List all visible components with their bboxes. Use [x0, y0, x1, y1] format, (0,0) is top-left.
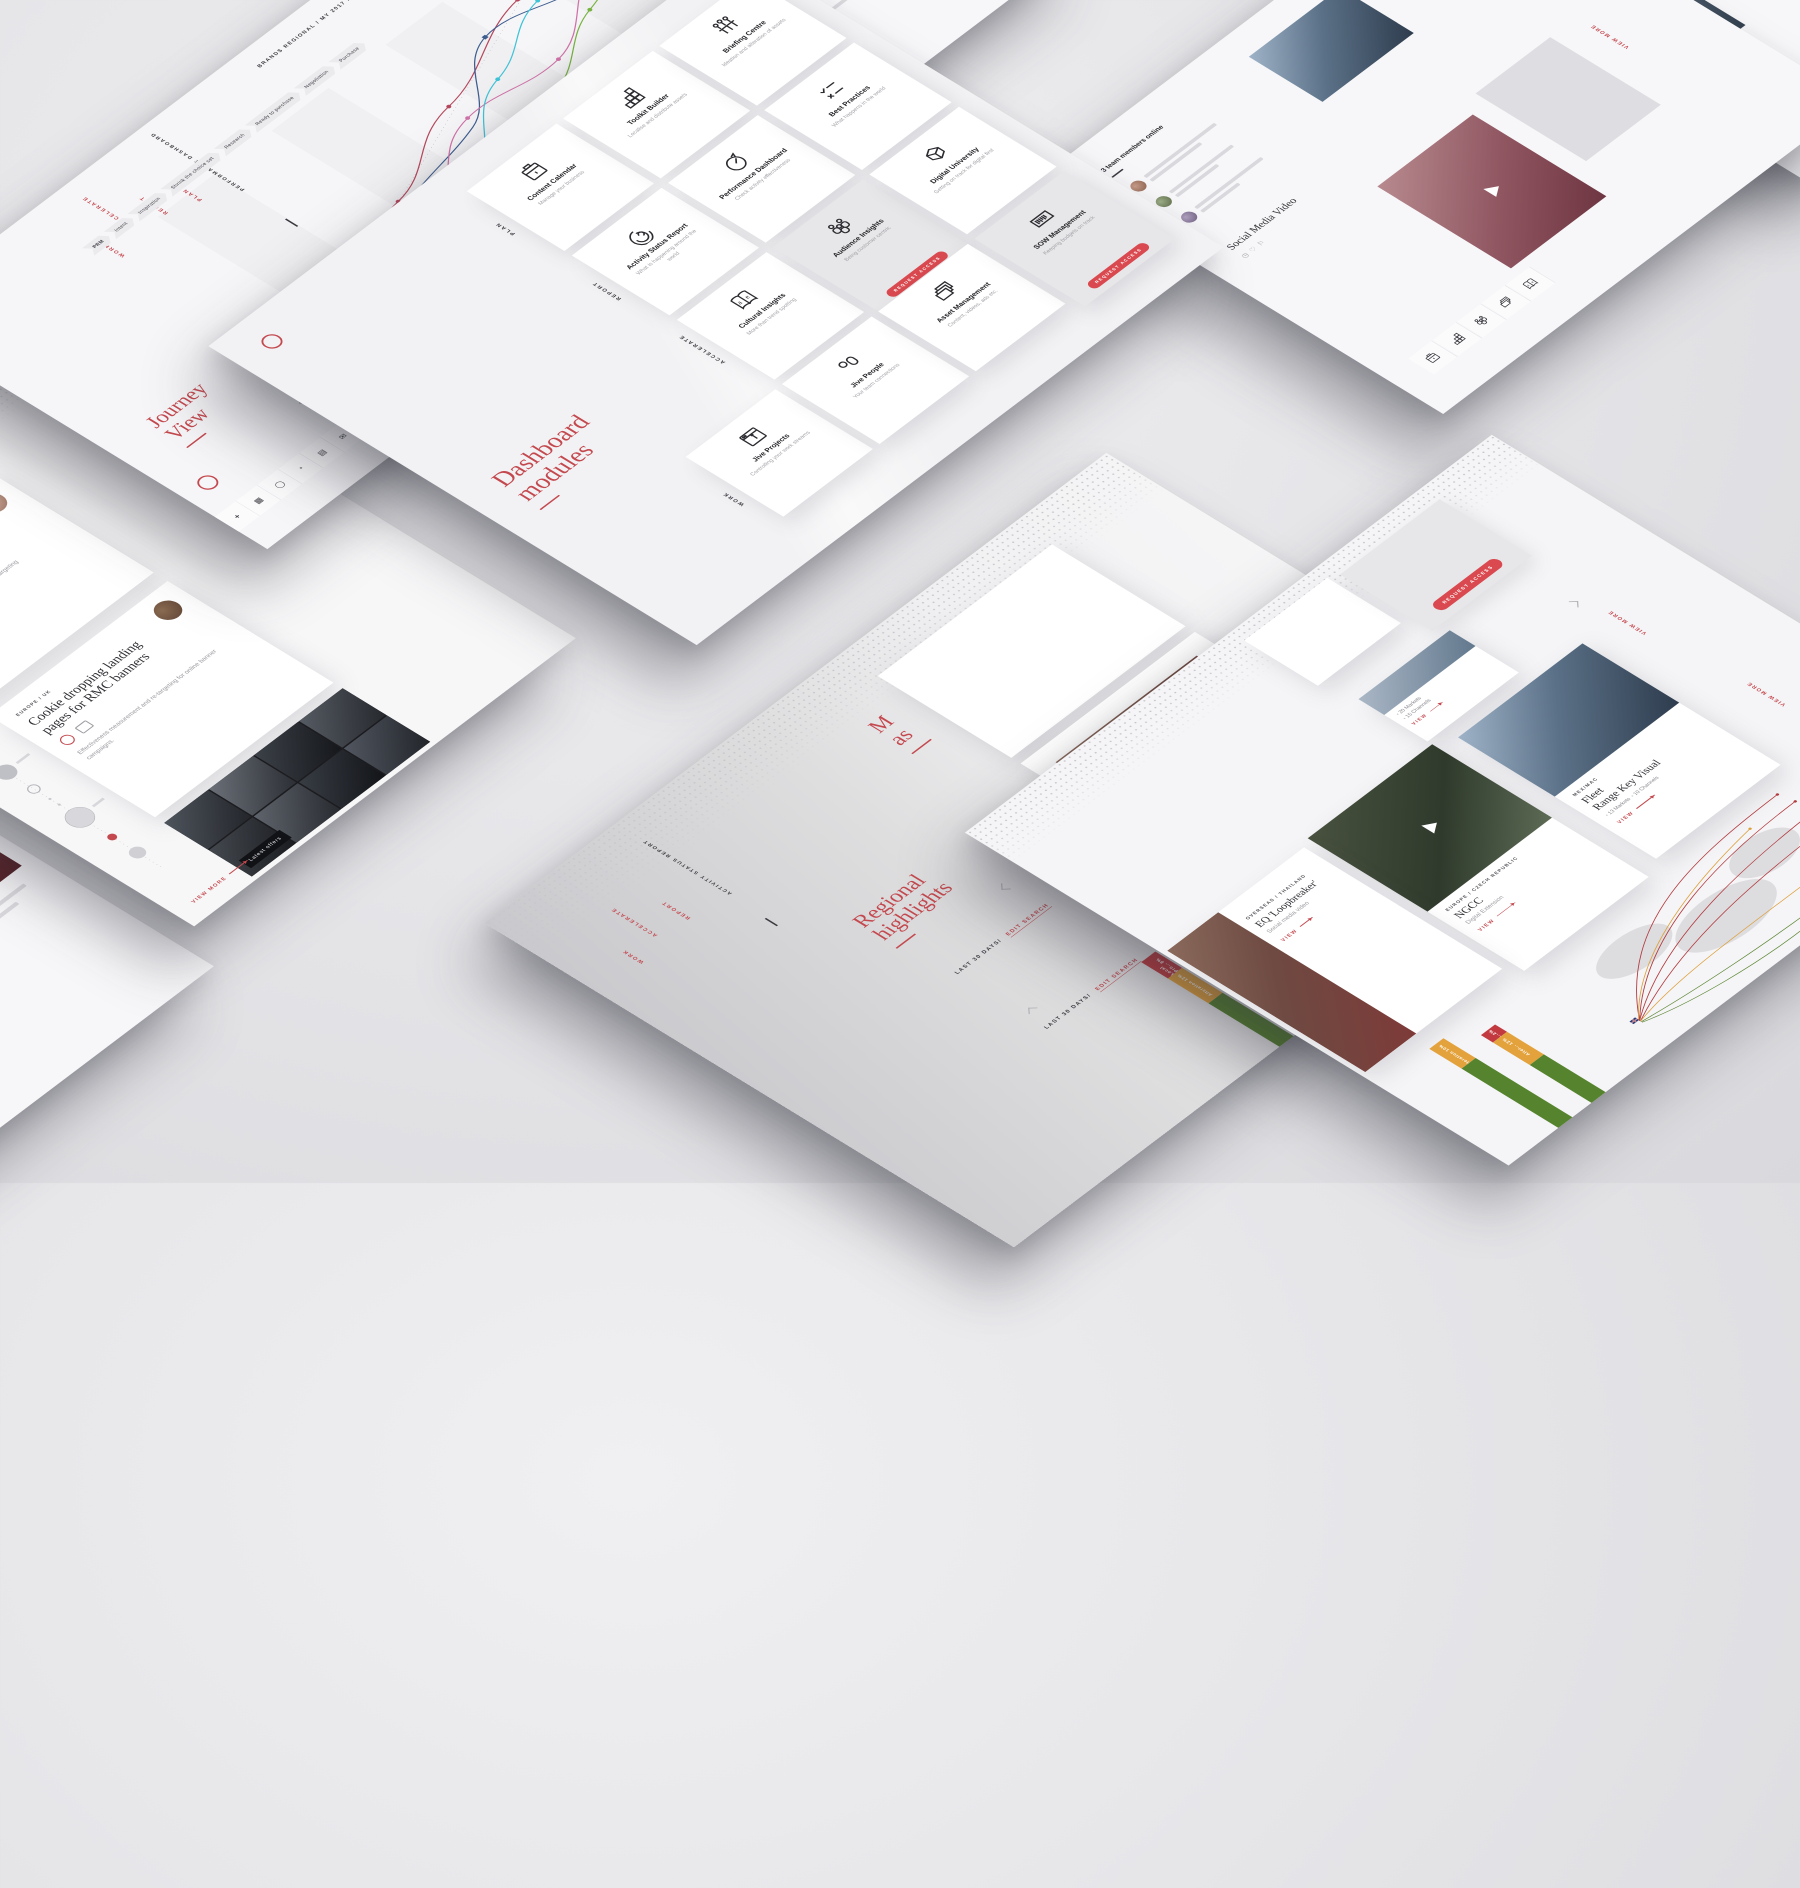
nav-report[interactable]: REPORT [660, 900, 692, 920]
chevron-right-icon[interactable] [1569, 601, 1579, 608]
arrow-icon [1636, 795, 1655, 809]
view-link[interactable]: VIEW [1616, 811, 1636, 825]
edit-search-link[interactable]: EDIT SEARCH [1004, 902, 1052, 937]
module-icon-toolbar [1408, 267, 1555, 375]
tile-name: Audience Insights [810, 202, 907, 274]
tile-name: Performance Dashboard [705, 138, 802, 210]
view-more-link[interactable]: VIEW MORE [190, 876, 229, 904]
uk-flag-marker [1629, 1017, 1639, 1024]
mockup-scene: { "colors":{"accent":"#c4494f","pill_red… [0, 0, 1800, 1183]
avatar [0, 489, 13, 516]
page-title: JourneyView [141, 380, 241, 449]
brand-mark-icon [57, 733, 78, 747]
cropped-title: Mas [864, 710, 932, 754]
filter-row: LAST 30 DAYS/ EDIT SEARCH [951, 901, 1051, 976]
tile-name: Toolkit Builder [600, 73, 697, 145]
tile-name: Asset Management [915, 266, 1012, 338]
view-more-link[interactable]: VIEW MORE [1606, 609, 1648, 635]
period-label: LAST 30 DAYS/ [953, 938, 1004, 975]
tile-name: Jive People [819, 339, 916, 411]
title-dash [896, 934, 916, 949]
play-icon[interactable] [1421, 819, 1443, 834]
page-title: Regionalhighlights [848, 866, 967, 949]
team-row[interactable] [1178, 156, 1271, 225]
video-title-block: Social Media Video ◷♡⚐ [1224, 196, 1312, 259]
tile-name: Jive Projects [723, 412, 820, 484]
bar-segment-production [1530, 1054, 1606, 1102]
chevron-up-icon[interactable] [1028, 1007, 1038, 1014]
stacked-bar-1: Alteration 10% [1429, 1038, 1572, 1128]
card-title: EQ 'Loopbreaker' [1252, 869, 1333, 929]
tile-name: Cultural Insights [714, 275, 811, 347]
nav-work[interactable]: WORK [621, 949, 646, 965]
view-link[interactable]: VIEW [1477, 918, 1497, 932]
team-row[interactable] [1152, 144, 1241, 210]
request-access-button[interactable]: REQUEST ACCESS [1430, 557, 1506, 613]
tile-name: SOW Management [1011, 194, 1108, 266]
comment-icon[interactable] [75, 720, 95, 734]
tile-name: Briefing Centre [696, 1, 793, 73]
nav-accelerate[interactable]: ACCELERATE [610, 907, 660, 938]
arrow-icon [1496, 902, 1515, 916]
chevron-left-icon[interactable] [1001, 883, 1011, 890]
status-underline [1111, 169, 1123, 178]
play-icon[interactable] [1483, 182, 1505, 197]
filter-row-2: LAST 30 DAYS/ EDIT SEARCH [1041, 956, 1141, 1031]
view-more-link[interactable]: VIEW MORE [1745, 681, 1787, 707]
arrow-icon [1300, 917, 1313, 927]
screen-team: 3 team members online Social Media Video… [1047, 0, 1800, 414]
section-dash [765, 918, 778, 926]
brand-logo [193, 472, 223, 492]
car-photo-card[interactable] [1249, 0, 1414, 102]
tile-name: Content Calendar [504, 146, 601, 218]
arrow-icon [1430, 702, 1443, 712]
tile-name: Digital University [906, 129, 1003, 201]
period-label: LAST 30 DAYS/ [1043, 993, 1094, 1030]
view-link[interactable]: VIEW [1280, 928, 1300, 942]
view-more-link[interactable]: VIEW MORE [1589, 23, 1631, 49]
tile-name: Best Practices [801, 65, 898, 137]
placeholder-line [0, 902, 19, 939]
edit-search-link[interactable]: EDIT SEARCH [1094, 957, 1142, 992]
